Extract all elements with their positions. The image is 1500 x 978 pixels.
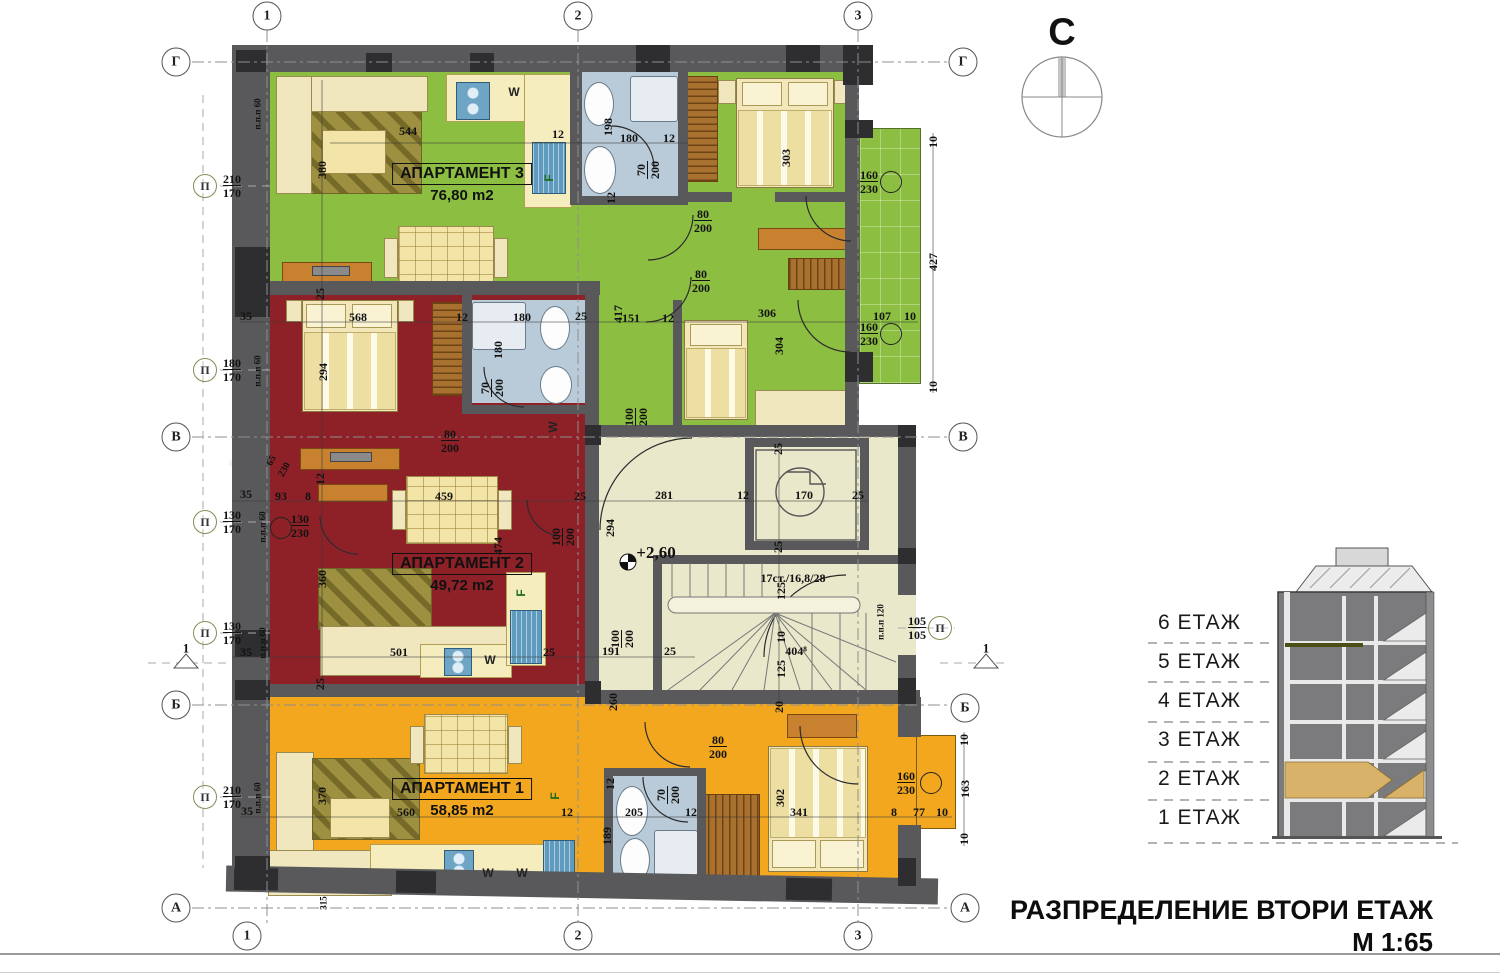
plan-shape [974,654,998,668]
fix-shape [584,146,616,194]
snk-shape [532,142,566,194]
wall-shape [599,425,898,437]
wall-shape [604,768,704,776]
pil-shape [772,840,816,868]
p-marker: П [193,358,217,382]
plan-shape [1384,808,1426,836]
pier-shape [898,858,916,886]
grid-axis-marker: 3 [844,2,873,31]
legend-floor-label: 5 ЕТАЖ [1158,650,1241,674]
pier-shape [235,856,270,890]
grid-axis-marker: 3 [844,922,873,951]
dimension-label: 427 [927,253,939,271]
sofa-shape [410,726,424,764]
pier-shape [585,425,601,445]
legend-floor-label: 1 ЕТАЖ [1158,806,1241,830]
pier-shape [898,678,916,704]
grid-axis-marker: 1 [253,2,282,31]
grid-axis-marker: 2 [564,922,593,951]
plan-shape [1384,731,1426,759]
pil-shape [352,304,392,328]
wall-shape [462,405,594,414]
plan-shape [174,654,198,668]
sofa-shape [494,238,508,278]
pil-shape [820,840,864,868]
plan-shape [1290,759,1426,763]
grid-axis-marker: Б [162,691,191,720]
compass-north-label: С [1048,12,1075,55]
wall-shape [745,438,754,550]
plan-shape [1426,592,1434,838]
sofa-shape [718,80,736,104]
grid-axis-marker: Г [162,48,191,77]
plan-shape [1310,568,1410,588]
pier-shape [843,45,873,85]
balcony [859,128,921,384]
wall-shape [570,70,582,200]
wall-shape [860,438,869,550]
pier-shape [235,680,270,700]
wall-shape [232,684,600,697]
plan-shape [1285,643,1363,647]
duv-shape [738,110,832,186]
plan-shape [1022,57,1102,137]
plan-shape [1384,652,1426,680]
plan-shape [1384,613,1426,836]
wardv-shape [788,258,850,290]
wall-shape [775,192,845,202]
plan-shape [1374,596,1378,836]
shw-shape [630,76,678,122]
plan-shape [1022,57,1102,137]
grid-axis-marker: 2 [564,2,593,31]
plan-shape [1290,798,1426,802]
ward2-shape [318,484,388,502]
wall-shape [232,45,868,72]
dimension-label: 10 [958,833,970,845]
pier-shape [636,45,670,72]
snk-shape [510,610,542,664]
pier-shape [786,45,820,72]
stv-shape [444,648,472,676]
pier-shape [396,871,436,894]
fix-shape [616,786,648,836]
plan-shape [1310,568,1330,588]
plan-shape [1278,592,1432,838]
pil-shape [306,304,346,328]
shw-shape [472,302,526,350]
pier-shape [470,53,494,72]
dimension-label: 1 [183,642,190,655]
wardv-shape [700,794,760,882]
dimension-label: 10 [927,381,939,393]
room-shape [898,737,916,825]
fix-shape [540,366,572,404]
plan-shape [1336,548,1388,566]
wall-shape [585,295,599,697]
grid-axis-marker: А [951,894,980,923]
duv-shape [304,332,396,410]
pier-shape [898,425,916,447]
pier-shape [236,50,266,72]
floor-plan-sheet: Bulgarian Properties [0,0,1500,978]
plan-shape [1384,770,1424,798]
wall-shape [745,438,869,447]
legend-floor-label: 4 ЕТАЖ [1158,689,1241,713]
legend-floor-label: 6 ЕТАЖ [1158,611,1241,635]
plan-shape [1384,613,1426,641]
wall-shape [585,690,920,704]
wall-shape [697,768,706,880]
pier-shape [585,681,601,704]
sofa-shape [286,300,302,322]
plan-shape [1272,548,1442,839]
plan-shape [1350,568,1370,588]
pier-shape [845,352,873,382]
wardh-shape [684,76,718,182]
plan-shape [1272,836,1442,839]
pier-shape [366,53,392,72]
wall-shape [678,70,688,202]
duv-shape [686,348,746,418]
pier-shape [786,878,832,901]
wall-shape [232,281,600,295]
plan-shape [1290,641,1426,802]
plan-shape [1290,720,1426,724]
sofa-shape [276,76,312,194]
ward2-shape [758,228,850,250]
wall-shape [570,196,688,205]
tblg-shape [406,476,498,544]
fix-shape [540,306,570,350]
window-niche [916,735,956,829]
room-shape [898,595,916,655]
grid-axis-marker: В [162,423,191,452]
dimension-label: 10 [927,136,939,148]
shw-shape [654,830,698,876]
wall-shape [653,555,898,564]
p-marker: П [193,174,217,198]
pier-shape [235,247,270,317]
ward2-shape [787,714,857,738]
plan-shape [1384,770,1426,798]
plan-shape [1390,568,1410,588]
wall-shape [604,768,613,880]
tbl-shape [330,798,390,838]
rug-shape [318,568,432,630]
grid-axis-marker: 1 [233,922,262,951]
stv-shape [456,82,490,120]
plan-shape [1284,592,1290,838]
pier-shape [898,548,916,564]
p-marker: П [193,510,217,534]
dimension-label: 315 [320,896,329,910]
wall-shape [653,555,662,694]
duv-shape [770,748,866,838]
dimension-label: 163 [959,780,971,798]
grid-axis-marker: Б [951,694,980,723]
tbl-shape [322,130,386,174]
tvs-shape [312,266,350,276]
p-marker: П [928,616,952,640]
tblg-shape [424,714,508,774]
legend-floor-label: 2 ЕТАЖ [1158,767,1241,791]
sofa-shape [392,490,406,530]
dimension-label: 1 [983,642,990,655]
plan-shape [1384,692,1426,720]
grid-axis-marker: Г [949,48,978,77]
plan-shape [1296,566,1432,592]
plan-shape [1330,568,1350,588]
grid-axis-marker: В [949,423,978,452]
dimension-label: 10 [958,734,970,746]
grid-axis-marker: А [162,894,191,923]
sofa-shape [755,390,853,426]
frame-line-2 [0,972,1500,973]
wall-shape [673,300,682,425]
sofa-shape [508,726,522,764]
plan-shape [1290,641,1426,645]
wall-shape [680,192,732,202]
sofa-shape [498,490,512,530]
plan-shape [1370,568,1390,588]
drawing-title: РАЗПРЕДЕЛЕНИЕ ВТОРИ ЕТАЖ [1010,895,1433,926]
p-marker: П [193,621,217,645]
pier-shape [845,120,873,138]
pil-shape [690,324,742,346]
fix-shape [584,82,614,126]
plan-shape [1342,596,1346,836]
sofa-shape [384,238,398,278]
pil-shape [742,82,782,106]
pil-shape [788,82,828,106]
legend-floor-label: 3 ЕТАЖ [1158,728,1241,752]
wall-shape [462,295,472,413]
pier-shape [235,630,270,657]
tvs-shape [330,452,372,462]
wall-shape [232,45,270,880]
plan-shape [1285,762,1392,798]
plan-shape [1290,680,1426,684]
sofa-shape [398,300,414,322]
wall-shape [745,541,869,550]
p-marker: П [193,785,217,809]
frame-line [0,953,1500,955]
